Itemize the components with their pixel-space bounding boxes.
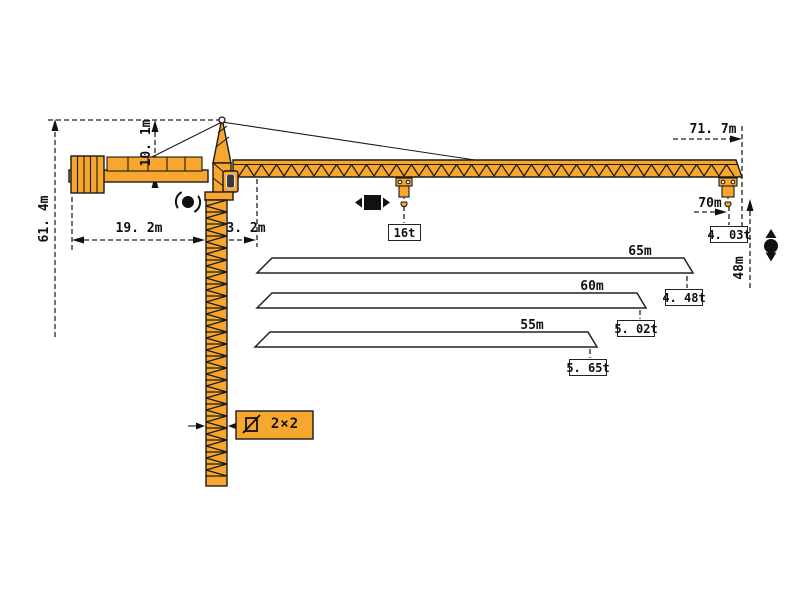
jib-option-bars — [255, 258, 693, 358]
slewing-platform — [205, 192, 233, 200]
mid-trolley — [396, 178, 412, 223]
tip-radius-label: 70m — [690, 196, 730, 212]
trolley-wheel — [721, 180, 725, 184]
jib-option-load-badge-65m: 4. 48t — [665, 289, 703, 306]
hoist-dot — [764, 239, 778, 253]
hoist-down-arrow — [766, 253, 777, 262]
hook-block — [399, 186, 409, 197]
jib-option-bar-60m — [257, 293, 646, 308]
hoist-up-arrow — [766, 229, 777, 238]
tip-load-badge: 4. 03t — [710, 226, 748, 243]
counter-jib-tie-rope — [150, 122, 222, 158]
hoist-up-down-icon — [764, 229, 778, 262]
jib-option-load-badge-55m: 5. 65t — [569, 359, 607, 376]
trolley-right-arrow — [383, 198, 390, 208]
cab-window — [227, 174, 235, 188]
slewing-dot — [182, 196, 194, 208]
total-height-arrow-icon — [52, 119, 59, 131]
hook — [401, 197, 407, 207]
operator-cab — [223, 171, 238, 192]
jib-option-load-badge-60m: 5. 02t — [617, 320, 655, 337]
mast-width-label: 3. 2m — [219, 221, 273, 237]
jib-option-bar-55m — [255, 332, 597, 347]
section-left-arrow-icon — [196, 423, 205, 430]
trolley-wheel — [731, 180, 735, 184]
counterweight-block — [71, 156, 104, 193]
total-height-label: 61. 4m — [37, 191, 53, 247]
max-load-badge: 16t — [388, 224, 421, 241]
head-height-label: 10. 1m — [139, 115, 155, 171]
mast-cross-section-icon — [243, 415, 260, 433]
jib-option-length-label-60m: 60m — [570, 279, 614, 295]
jib-tie-rope — [222, 122, 495, 163]
trolley-wheel — [406, 180, 410, 184]
trolley-left-arrow — [355, 198, 362, 208]
lift-height-label: 48m — [732, 248, 748, 288]
apex-pin — [219, 117, 225, 123]
jib — [233, 160, 742, 177]
counter-jib-left-arrow-icon — [72, 237, 84, 244]
jib-option-length-label-65m: 65m — [618, 244, 662, 260]
trolley-symbol-square — [364, 195, 381, 210]
trolley-wheel — [398, 180, 402, 184]
slewing-rotation-icon — [176, 193, 200, 212]
crane-diagram: 71. 7m 70m 48m 61. 4m 10. 1m 19. 2m 3. 2… — [0, 0, 800, 600]
max-radius-label: 71. 7m — [682, 122, 744, 138]
mast-width-arrow-icon — [244, 237, 256, 244]
counter-jib-radius-label: 19. 2m — [107, 221, 171, 237]
mast-section-label: 2×2 — [262, 416, 308, 432]
jib-option-length-label-55m: 55m — [510, 318, 554, 334]
jib-option-bar-65m — [257, 258, 693, 273]
counter-jib-right-arrow-icon — [193, 237, 205, 244]
lift-height-arrow-icon — [747, 199, 754, 211]
trolley-travel-icon — [355, 195, 390, 210]
